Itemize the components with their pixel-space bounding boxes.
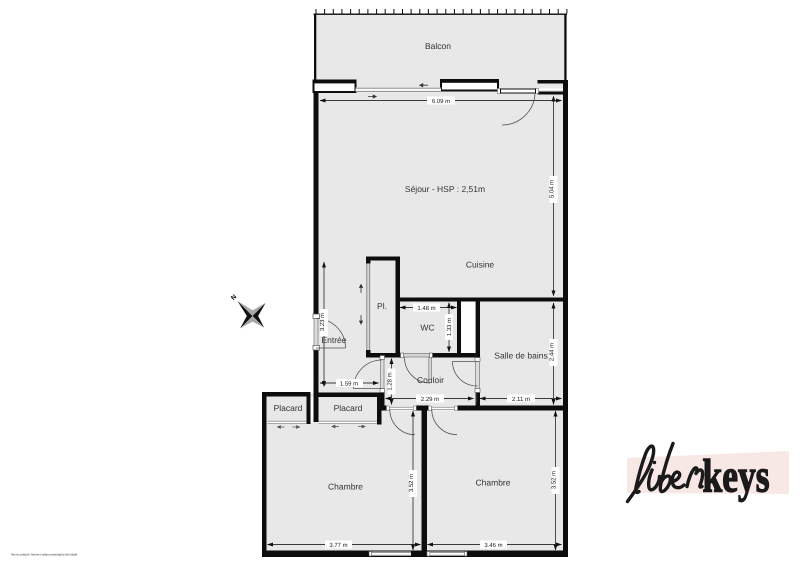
svg-text:5.04 m: 5.04 m <box>549 180 556 198</box>
svg-text:1.28 m: 1.28 m <box>387 372 394 390</box>
svg-text:1.48 m: 1.48 m <box>417 305 435 312</box>
svg-text:Placard: Placard <box>334 403 363 413</box>
svg-text:Chambre: Chambre <box>328 482 363 492</box>
svg-text:Chambre: Chambre <box>476 478 511 488</box>
svg-text:2.29 m: 2.29 m <box>421 396 439 403</box>
svg-text:6.09 m: 6.09 m <box>432 98 450 105</box>
svg-text:Séjour - HSP : 2,51m: Séjour - HSP : 2,51m <box>405 184 485 194</box>
svg-text:Balcon: Balcon <box>425 41 451 51</box>
svg-text:3.23 m: 3.23 m <box>319 313 326 331</box>
svg-text:Placard: Placard <box>274 403 303 413</box>
svg-text:Couloir: Couloir <box>417 375 444 385</box>
svg-text:Plan non contractuel - Mesures: Plan non contractuel - Mesures et surfac… <box>11 552 77 556</box>
svg-text:keys: keys <box>703 451 770 503</box>
svg-text:WC: WC <box>420 323 434 333</box>
svg-text:3.77 m: 3.77 m <box>329 542 347 549</box>
svg-text:2.11 m: 2.11 m <box>512 396 530 403</box>
svg-text:1.59 m: 1.59 m <box>340 381 358 388</box>
svg-text:Cuisine: Cuisine <box>466 260 495 270</box>
svg-text:Entrée: Entrée <box>321 335 346 345</box>
svg-text:1.33 m: 1.33 m <box>446 318 453 336</box>
svg-text:3.52 m: 3.52 m <box>551 471 558 489</box>
svg-text:Pl.: Pl. <box>377 301 387 311</box>
svg-text:3.52 m: 3.52 m <box>408 474 415 492</box>
svg-text:2.44 m: 2.44 m <box>549 343 556 361</box>
svg-text:Salle de bains: Salle de bains <box>494 351 547 361</box>
svg-text:3.46 m: 3.46 m <box>484 542 502 549</box>
